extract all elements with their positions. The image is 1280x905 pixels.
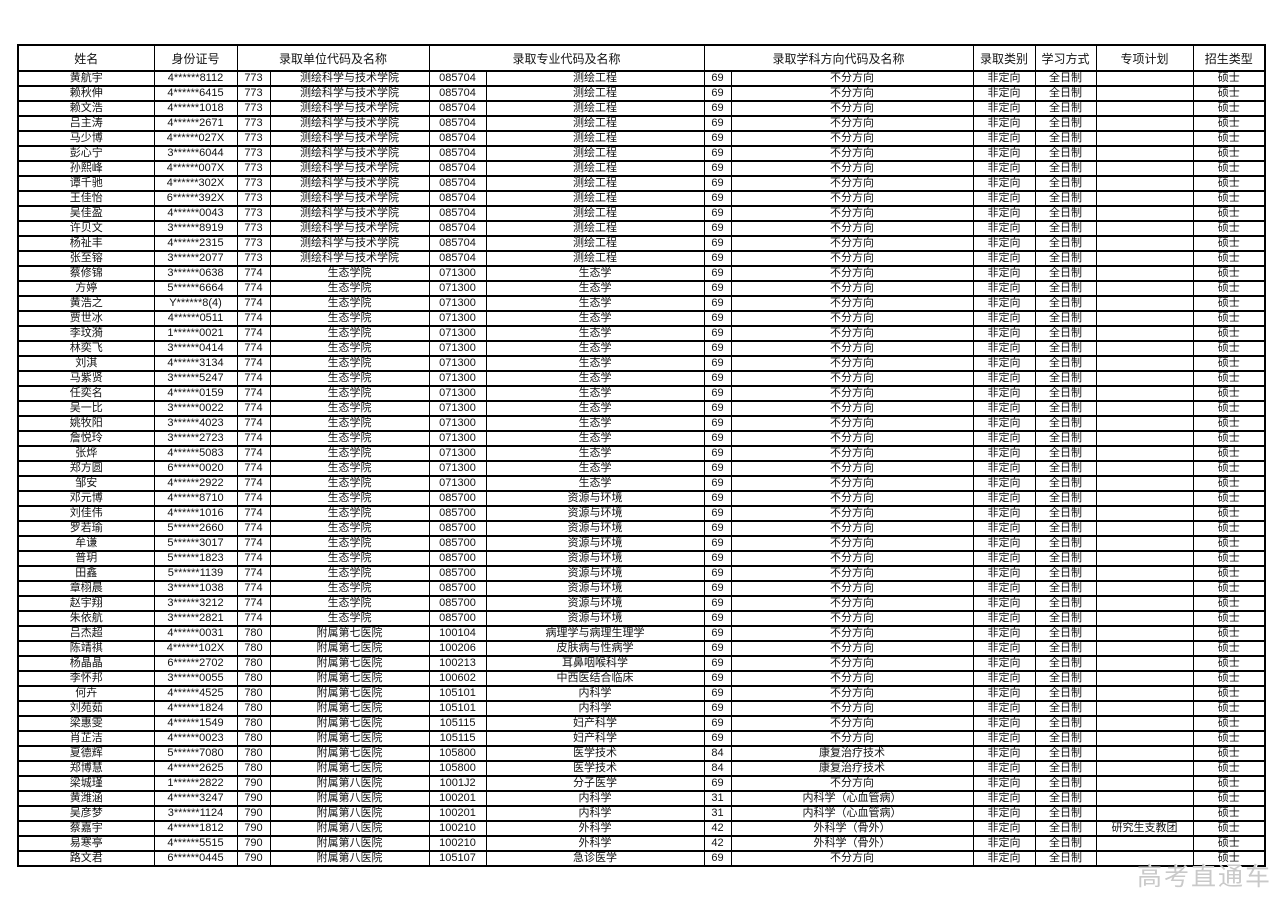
direction-code-cell: 84 <box>704 761 731 776</box>
table-row: 章栩晨3******1038774生态学院085700资源与环境69不分方向非定… <box>18 581 1265 596</box>
unit-code-cell: 790 <box>237 791 270 806</box>
direction-name-cell: 不分方向 <box>731 596 973 611</box>
id-number-cell: 4******007X <box>154 161 237 176</box>
enroll-type-cell: 硕士 <box>1193 86 1265 101</box>
study-mode-cell: 全日制 <box>1035 251 1096 266</box>
id-number-cell: 5******2660 <box>154 521 237 536</box>
major-name-cell: 内科学 <box>486 701 704 716</box>
unit-name-cell: 生态学院 <box>270 341 429 356</box>
name-cell: 吴佳盈 <box>18 206 154 221</box>
study-mode-cell: 全日制 <box>1035 836 1096 851</box>
name-cell: 方婷 <box>18 281 154 296</box>
major-name-cell: 生态学 <box>486 356 704 371</box>
table-row: 郑方圆6******0020774生态学院071300生态学69不分方向非定向全… <box>18 461 1265 476</box>
direction-code-cell: 69 <box>704 776 731 791</box>
enroll-type-cell: 硕士 <box>1193 161 1265 176</box>
major-name-cell: 资源与环境 <box>486 536 704 551</box>
direction-code-cell: 69 <box>704 221 731 236</box>
major-name-cell: 测绘工程 <box>486 101 704 116</box>
unit-code-cell: 774 <box>237 341 270 356</box>
table-row: 杨晶晶6******2702780附属第七医院100213耳鼻咽喉科学69不分方… <box>18 656 1265 671</box>
category-cell: 非定向 <box>973 176 1035 191</box>
enroll-type-cell: 硕士 <box>1193 416 1265 431</box>
table-row: 马少博4******027X773测绘科学与技术学院085704测绘工程69不分… <box>18 131 1265 146</box>
id-number-cell: 3******0414 <box>154 341 237 356</box>
table-row: 张烨4******5083774生态学院071300生态学69不分方向非定向全日… <box>18 446 1265 461</box>
column-header-id-number: 身份证号 <box>154 45 237 71</box>
direction-name-cell: 不分方向 <box>731 476 973 491</box>
table-row: 刘佳伟4******1016774生态学院085700资源与环境69不分方向非定… <box>18 506 1265 521</box>
unit-name-cell: 附属第七医院 <box>270 671 429 686</box>
study-mode-cell: 全日制 <box>1035 341 1096 356</box>
name-cell: 孙熙峰 <box>18 161 154 176</box>
column-header-admission-category: 录取类别 <box>973 45 1035 71</box>
major-code-cell: 085700 <box>429 566 486 581</box>
special-plan-cell <box>1096 626 1193 641</box>
study-mode-cell: 全日制 <box>1035 701 1096 716</box>
table-row: 林奕飞3******0414774生态学院071300生态学69不分方向非定向全… <box>18 341 1265 356</box>
study-mode-cell: 全日制 <box>1035 416 1096 431</box>
unit-code-cell: 790 <box>237 776 270 791</box>
special-plan-cell <box>1096 356 1193 371</box>
direction-code-cell: 42 <box>704 821 731 836</box>
study-mode-cell: 全日制 <box>1035 746 1096 761</box>
major-name-cell: 中西医结合临床 <box>486 671 704 686</box>
category-cell: 非定向 <box>973 611 1035 626</box>
major-code-cell: 085700 <box>429 536 486 551</box>
category-cell: 非定向 <box>973 131 1035 146</box>
table-row: 何卉4******4525780附属第七医院105101内科学69不分方向非定向… <box>18 686 1265 701</box>
name-cell: 姚牧阳 <box>18 416 154 431</box>
major-name-cell: 内科学 <box>486 686 704 701</box>
direction-code-cell: 69 <box>704 731 731 746</box>
name-cell: 郑博慧 <box>18 761 154 776</box>
name-cell: 谭千驰 <box>18 176 154 191</box>
special-plan-cell <box>1096 596 1193 611</box>
name-cell: 梁城瑾 <box>18 776 154 791</box>
direction-name-cell: 不分方向 <box>731 341 973 356</box>
unit-name-cell: 附属第七医院 <box>270 701 429 716</box>
enroll-type-cell: 硕士 <box>1193 461 1265 476</box>
id-number-cell: 5******1139 <box>154 566 237 581</box>
unit-name-cell: 测绘科学与技术学院 <box>270 116 429 131</box>
enroll-type-cell: 硕士 <box>1193 311 1265 326</box>
unit-name-cell: 测绘科学与技术学院 <box>270 131 429 146</box>
category-cell: 非定向 <box>973 536 1035 551</box>
direction-name-cell: 不分方向 <box>731 161 973 176</box>
unit-code-cell: 773 <box>237 131 270 146</box>
major-name-cell: 病理学与病理生理学 <box>486 626 704 641</box>
unit-code-cell: 774 <box>237 416 270 431</box>
special-plan-cell <box>1096 221 1193 236</box>
table-row: 吕杰超4******0031780附属第七医院100104病理学与病理生理学69… <box>18 626 1265 641</box>
unit-name-cell: 测绘科学与技术学院 <box>270 221 429 236</box>
category-cell: 非定向 <box>973 581 1035 596</box>
category-cell: 非定向 <box>973 626 1035 641</box>
major-code-cell: 085704 <box>429 176 486 191</box>
unit-code-cell: 773 <box>237 236 270 251</box>
table-row: 赵宇翔3******3212774生态学院085700资源与环境69不分方向非定… <box>18 596 1265 611</box>
id-number-cell: 4******0023 <box>154 731 237 746</box>
direction-code-cell: 69 <box>704 686 731 701</box>
category-cell: 非定向 <box>973 746 1035 761</box>
name-cell: 章栩晨 <box>18 581 154 596</box>
study-mode-cell: 全日制 <box>1035 236 1096 251</box>
id-number-cell: 4******2315 <box>154 236 237 251</box>
direction-name-cell: 不分方向 <box>731 296 973 311</box>
table-row: 黄浩之Y******8(4)774生态学院071300生态学69不分方向非定向全… <box>18 296 1265 311</box>
table-row: 詹悦玲3******2723774生态学院071300生态学69不分方向非定向全… <box>18 431 1265 446</box>
special-plan-cell <box>1096 191 1193 206</box>
table-row: 吴佳盈4******0043773测绘科学与技术学院085704测绘工程69不分… <box>18 206 1265 221</box>
unit-name-cell: 测绘科学与技术学院 <box>270 101 429 116</box>
table-row: 刘淇4******3134774生态学院071300生态学69不分方向非定向全日… <box>18 356 1265 371</box>
direction-code-cell: 69 <box>704 236 731 251</box>
major-code-cell: 100602 <box>429 671 486 686</box>
direction-code-cell: 69 <box>704 116 731 131</box>
study-mode-cell: 全日制 <box>1035 476 1096 491</box>
study-mode-cell: 全日制 <box>1035 86 1096 101</box>
major-name-cell: 生态学 <box>486 296 704 311</box>
category-cell: 非定向 <box>973 716 1035 731</box>
table-row: 牟谦5******3017774生态学院085700资源与环境69不分方向非定向… <box>18 536 1265 551</box>
unit-code-cell: 774 <box>237 596 270 611</box>
direction-code-cell: 69 <box>704 296 731 311</box>
unit-code-cell: 774 <box>237 551 270 566</box>
unit-name-cell: 生态学院 <box>270 446 429 461</box>
id-number-cell: 4******027X <box>154 131 237 146</box>
major-name-cell: 妇产科学 <box>486 731 704 746</box>
table-row: 杨祉丰4******2315773测绘科学与技术学院085704测绘工程69不分… <box>18 236 1265 251</box>
major-code-cell: 085700 <box>429 596 486 611</box>
category-cell: 非定向 <box>973 521 1035 536</box>
category-cell: 非定向 <box>973 566 1035 581</box>
name-cell: 王佳怡 <box>18 191 154 206</box>
enroll-type-cell: 硕士 <box>1193 806 1265 821</box>
unit-code-cell: 780 <box>237 686 270 701</box>
unit-name-cell: 测绘科学与技术学院 <box>270 146 429 161</box>
id-number-cell: 5******1823 <box>154 551 237 566</box>
special-plan-cell <box>1096 176 1193 191</box>
name-cell: 刘佳伟 <box>18 506 154 521</box>
enroll-type-cell: 硕士 <box>1193 116 1265 131</box>
id-number-cell: 5******7080 <box>154 746 237 761</box>
table-row: 李怀邦3******0055780附属第七医院100602中西医结合临床69不分… <box>18 671 1265 686</box>
unit-name-cell: 生态学院 <box>270 431 429 446</box>
unit-code-cell: 780 <box>237 731 270 746</box>
category-cell: 非定向 <box>973 221 1035 236</box>
direction-code-cell: 69 <box>704 701 731 716</box>
id-number-cell: 3******2723 <box>154 431 237 446</box>
study-mode-cell: 全日制 <box>1035 461 1096 476</box>
id-number-cell: 3******1124 <box>154 806 237 821</box>
study-mode-cell: 全日制 <box>1035 116 1096 131</box>
special-plan-cell <box>1096 86 1193 101</box>
name-cell: 普玥 <box>18 551 154 566</box>
category-cell: 非定向 <box>973 101 1035 116</box>
study-mode-cell: 全日制 <box>1035 656 1096 671</box>
id-number-cell: 3******1038 <box>154 581 237 596</box>
name-cell: 彭心宁 <box>18 146 154 161</box>
unit-name-cell: 生态学院 <box>270 461 429 476</box>
name-cell: 邓元博 <box>18 491 154 506</box>
watermark: 高考直通车 <box>1137 857 1272 893</box>
unit-code-cell: 780 <box>237 626 270 641</box>
enroll-type-cell: 硕士 <box>1193 821 1265 836</box>
direction-code-cell: 69 <box>704 491 731 506</box>
major-name-cell: 分子医学 <box>486 776 704 791</box>
direction-name-cell: 不分方向 <box>731 461 973 476</box>
table-row: 蔡修锦3******0638774生态学院071300生态学69不分方向非定向全… <box>18 266 1265 281</box>
unit-name-cell: 生态学院 <box>270 476 429 491</box>
unit-code-cell: 774 <box>237 491 270 506</box>
name-cell: 刘淇 <box>18 356 154 371</box>
major-name-cell: 耳鼻咽喉科学 <box>486 656 704 671</box>
id-number-cell: 1******2822 <box>154 776 237 791</box>
direction-name-cell: 外科学（骨外） <box>731 836 973 851</box>
major-name-cell: 测绘工程 <box>486 191 704 206</box>
direction-code-cell: 69 <box>704 356 731 371</box>
unit-name-cell: 生态学院 <box>270 506 429 521</box>
unit-code-cell: 780 <box>237 761 270 776</box>
study-mode-cell: 全日制 <box>1035 266 1096 281</box>
document-page: 姓名 身份证号 录取单位代码及名称 录取专业代码及名称 录取学科方向代码及名称 … <box>0 0 1280 905</box>
table-row: 陈靖祺4******102X780附属第七医院100206皮肤病与性病学69不分… <box>18 641 1265 656</box>
special-plan-cell <box>1096 161 1193 176</box>
direction-name-cell: 不分方向 <box>731 626 973 641</box>
major-code-cell: 085704 <box>429 146 486 161</box>
direction-name-cell: 不分方向 <box>731 716 973 731</box>
unit-code-cell: 790 <box>237 821 270 836</box>
direction-code-cell: 69 <box>704 251 731 266</box>
name-cell: 任奕名 <box>18 386 154 401</box>
unit-code-cell: 773 <box>237 251 270 266</box>
enroll-type-cell: 硕士 <box>1193 476 1265 491</box>
table-row: 李玟漪1******0021774生态学院071300生态学69不分方向非定向全… <box>18 326 1265 341</box>
direction-code-cell: 69 <box>704 176 731 191</box>
id-number-cell: 4******6415 <box>154 86 237 101</box>
id-number-cell: 4******2625 <box>154 761 237 776</box>
id-number-cell: 4******0031 <box>154 626 237 641</box>
direction-name-cell: 不分方向 <box>731 71 973 86</box>
unit-code-cell: 774 <box>237 431 270 446</box>
unit-code-cell: 774 <box>237 371 270 386</box>
study-mode-cell: 全日制 <box>1035 761 1096 776</box>
unit-name-cell: 附属第七医院 <box>270 626 429 641</box>
study-mode-cell: 全日制 <box>1035 296 1096 311</box>
category-cell: 非定向 <box>973 311 1035 326</box>
major-code-cell: 100210 <box>429 821 486 836</box>
major-name-cell: 生态学 <box>486 401 704 416</box>
unit-code-cell: 790 <box>237 851 270 866</box>
special-plan-cell <box>1096 836 1193 851</box>
id-number-cell: 3******0055 <box>154 671 237 686</box>
unit-code-cell: 774 <box>237 461 270 476</box>
study-mode-cell: 全日制 <box>1035 431 1096 446</box>
name-cell: 黄潍涵 <box>18 791 154 806</box>
major-name-cell: 生态学 <box>486 431 704 446</box>
category-cell: 非定向 <box>973 326 1035 341</box>
study-mode-cell: 全日制 <box>1035 626 1096 641</box>
major-code-cell: 100104 <box>429 626 486 641</box>
unit-code-cell: 774 <box>237 611 270 626</box>
id-number-cell: 6******2702 <box>154 656 237 671</box>
enroll-type-cell: 硕士 <box>1193 131 1265 146</box>
special-plan-cell <box>1096 521 1193 536</box>
study-mode-cell: 全日制 <box>1035 791 1096 806</box>
id-number-cell: 5******3017 <box>154 536 237 551</box>
special-plan-cell <box>1096 101 1193 116</box>
unit-code-cell: 774 <box>237 581 270 596</box>
study-mode-cell: 全日制 <box>1035 356 1096 371</box>
special-plan-cell <box>1096 341 1193 356</box>
major-name-cell: 资源与环境 <box>486 581 704 596</box>
special-plan-cell <box>1096 701 1193 716</box>
category-cell: 非定向 <box>973 806 1035 821</box>
special-plan-cell <box>1096 581 1193 596</box>
category-cell: 非定向 <box>973 656 1035 671</box>
name-cell: 黄航宇 <box>18 71 154 86</box>
major-name-cell: 内科学 <box>486 791 704 806</box>
special-plan-cell <box>1096 386 1193 401</box>
enroll-type-cell: 硕士 <box>1193 701 1265 716</box>
unit-name-cell: 测绘科学与技术学院 <box>270 191 429 206</box>
id-number-cell: 3******6044 <box>154 146 237 161</box>
id-number-cell: 1******0021 <box>154 326 237 341</box>
direction-name-cell: 不分方向 <box>731 131 973 146</box>
table-row: 肖芷洁4******0023780附属第七医院105115妇产科学69不分方向非… <box>18 731 1265 746</box>
major-code-cell: 071300 <box>429 461 486 476</box>
name-cell: 陈靖祺 <box>18 641 154 656</box>
study-mode-cell: 全日制 <box>1035 206 1096 221</box>
major-code-cell: 071300 <box>429 266 486 281</box>
unit-code-cell: 774 <box>237 326 270 341</box>
category-cell: 非定向 <box>973 161 1035 176</box>
unit-name-cell: 附属第八医院 <box>270 821 429 836</box>
category-cell: 非定向 <box>973 641 1035 656</box>
unit-code-cell: 774 <box>237 401 270 416</box>
major-code-cell: 105101 <box>429 701 486 716</box>
special-plan-cell <box>1096 236 1193 251</box>
study-mode-cell: 全日制 <box>1035 596 1096 611</box>
direction-name-cell: 不分方向 <box>731 731 973 746</box>
table-row: 吴彦梦3******1124790附属第八医院100201内科学31内科学（心血… <box>18 806 1265 821</box>
direction-name-cell: 康复治疗技术 <box>731 746 973 761</box>
direction-code-cell: 69 <box>704 131 731 146</box>
special-plan-cell <box>1096 296 1193 311</box>
table-row: 田鑫5******1139774生态学院085700资源与环境69不分方向非定向… <box>18 566 1265 581</box>
major-name-cell: 内科学 <box>486 806 704 821</box>
name-cell: 刘苑茹 <box>18 701 154 716</box>
category-cell: 非定向 <box>973 266 1035 281</box>
direction-name-cell: 不分方向 <box>731 401 973 416</box>
unit-code-cell: 773 <box>237 86 270 101</box>
direction-code-cell: 69 <box>704 101 731 116</box>
table-row: 马紫贤3******5247774生态学院071300生态学69不分方向非定向全… <box>18 371 1265 386</box>
category-cell: 非定向 <box>973 461 1035 476</box>
special-plan-cell <box>1096 791 1193 806</box>
column-header-study-mode: 学习方式 <box>1035 45 1096 71</box>
major-code-cell: 085704 <box>429 131 486 146</box>
unit-code-cell: 780 <box>237 701 270 716</box>
unit-name-cell: 附属第七医院 <box>270 731 429 746</box>
id-number-cell: 4******2922 <box>154 476 237 491</box>
id-number-cell: 4******1549 <box>154 716 237 731</box>
major-name-cell: 测绘工程 <box>486 71 704 86</box>
direction-name-cell: 康复治疗技术 <box>731 761 973 776</box>
direction-code-cell: 69 <box>704 161 731 176</box>
unit-name-cell: 测绘科学与技术学院 <box>270 251 429 266</box>
id-number-cell: 4******1824 <box>154 701 237 716</box>
direction-name-cell: 不分方向 <box>731 311 973 326</box>
unit-name-cell: 生态学院 <box>270 401 429 416</box>
major-name-cell: 生态学 <box>486 341 704 356</box>
study-mode-cell: 全日制 <box>1035 506 1096 521</box>
direction-code-cell: 69 <box>704 341 731 356</box>
study-mode-cell: 全日制 <box>1035 776 1096 791</box>
enroll-type-cell: 硕士 <box>1193 626 1265 641</box>
major-name-cell: 测绘工程 <box>486 176 704 191</box>
unit-code-cell: 774 <box>237 281 270 296</box>
major-name-cell: 资源与环境 <box>486 491 704 506</box>
direction-code-cell: 69 <box>704 506 731 521</box>
table-row: 梁城瑾1******2822790附属第八医院1001J2分子医学69不分方向非… <box>18 776 1265 791</box>
direction-name-cell: 不分方向 <box>731 356 973 371</box>
id-number-cell: 5******6664 <box>154 281 237 296</box>
direction-name-cell: 不分方向 <box>731 581 973 596</box>
category-cell: 非定向 <box>973 491 1035 506</box>
unit-name-cell: 测绘科学与技术学院 <box>270 71 429 86</box>
direction-name-cell: 不分方向 <box>731 851 973 866</box>
name-cell: 蔡嘉宇 <box>18 821 154 836</box>
header-row: 姓名 身份证号 录取单位代码及名称 录取专业代码及名称 录取学科方向代码及名称 … <box>18 45 1265 71</box>
unit-code-cell: 774 <box>237 311 270 326</box>
enroll-type-cell: 硕士 <box>1193 596 1265 611</box>
major-name-cell: 妇产科学 <box>486 716 704 731</box>
id-number-cell: 4******3247 <box>154 791 237 806</box>
special-plan-cell <box>1096 686 1193 701</box>
category-cell: 非定向 <box>973 191 1035 206</box>
table-row: 罗若瑜5******2660774生态学院085700资源与环境69不分方向非定… <box>18 521 1265 536</box>
study-mode-cell: 全日制 <box>1035 401 1096 416</box>
major-name-cell: 生态学 <box>486 326 704 341</box>
name-cell: 李怀邦 <box>18 671 154 686</box>
major-code-cell: 085700 <box>429 551 486 566</box>
study-mode-cell: 全日制 <box>1035 161 1096 176</box>
major-name-cell: 生态学 <box>486 371 704 386</box>
unit-name-cell: 生态学院 <box>270 311 429 326</box>
unit-name-cell: 附属第七医院 <box>270 641 429 656</box>
unit-name-cell: 生态学院 <box>270 296 429 311</box>
enroll-type-cell: 硕士 <box>1193 251 1265 266</box>
major-code-cell: 085700 <box>429 521 486 536</box>
id-number-cell: 4******8710 <box>154 491 237 506</box>
major-name-cell: 外科学 <box>486 821 704 836</box>
direction-code-cell: 69 <box>704 281 731 296</box>
special-plan-cell <box>1096 731 1193 746</box>
major-name-cell: 医学技术 <box>486 761 704 776</box>
direction-name-cell: 不分方向 <box>731 326 973 341</box>
table-row: 吕主涛4******2671773测绘科学与技术学院085704测绘工程69不分… <box>18 116 1265 131</box>
direction-name-cell: 内科学（心血管病） <box>731 806 973 821</box>
name-cell: 田鑫 <box>18 566 154 581</box>
id-number-cell: 4******1018 <box>154 101 237 116</box>
direction-name-cell: 内科学（心血管病） <box>731 791 973 806</box>
category-cell: 非定向 <box>973 506 1035 521</box>
special-plan-cell <box>1096 281 1193 296</box>
major-name-cell: 测绘工程 <box>486 116 704 131</box>
category-cell: 非定向 <box>973 416 1035 431</box>
